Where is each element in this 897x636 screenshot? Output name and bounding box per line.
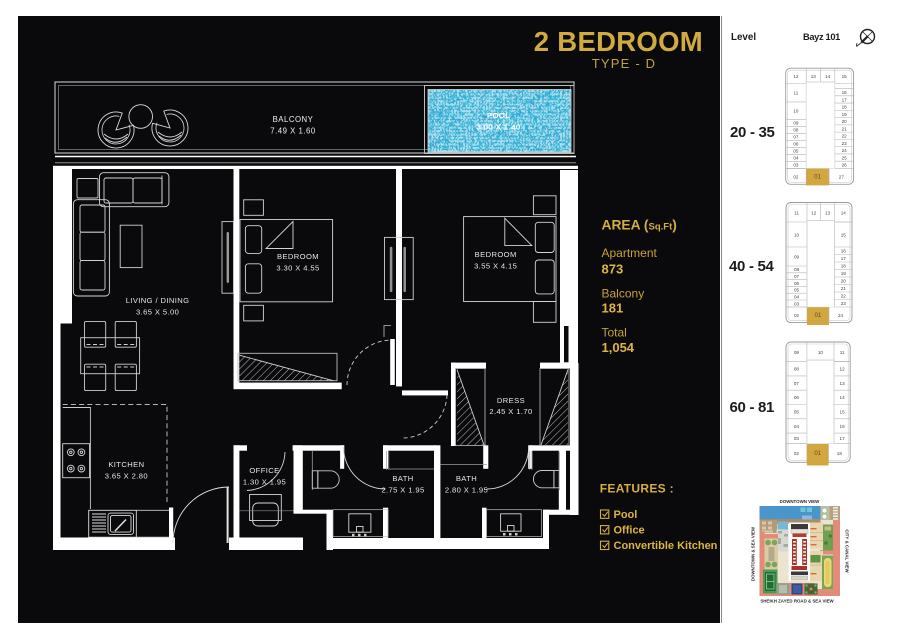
svg-text:15: 15 [841,232,847,237]
svg-text:DOWNTOWN VIEW: DOWNTOWN VIEW [780,499,821,504]
svg-text:Apartment: Apartment [602,246,658,260]
svg-text:Office: Office [614,525,645,537]
svg-text:17: 17 [841,256,847,261]
svg-text:60 - 81: 60 - 81 [730,399,775,416]
svg-text:11: 11 [794,91,799,96]
svg-text:19: 19 [841,271,847,276]
svg-text:3.30 X 4.55: 3.30 X 4.55 [276,264,319,273]
svg-text:13: 13 [840,381,846,386]
svg-text:Pool: Pool [614,509,638,521]
svg-text:DOWNTOWN & SEA VIEW: DOWNTOWN & SEA VIEW [751,526,756,581]
svg-text:2.75 X 1.95: 2.75 X 1.95 [381,486,424,495]
svg-text:12: 12 [840,367,846,372]
svg-text:LIVING / DINING: LIVING / DINING [126,296,190,305]
svg-text:07: 07 [793,135,799,140]
svg-text:24: 24 [838,313,844,318]
svg-text:12: 12 [793,74,799,79]
svg-text:01: 01 [814,451,821,457]
svg-text:181: 181 [602,301,624,316]
svg-text:27: 27 [839,174,845,179]
svg-text:14: 14 [841,210,847,215]
svg-text:11: 11 [794,210,799,215]
svg-text:26: 26 [842,163,848,168]
svg-text:7.49 X 1.60: 7.49 X 1.60 [270,127,316,136]
svg-text:12: 12 [811,210,817,215]
svg-text:3.55 X 4.15: 3.55 X 4.15 [474,262,517,271]
svg-text:BEDROOM: BEDROOM [475,250,517,259]
svg-text:20: 20 [842,119,848,124]
svg-text:05: 05 [793,149,799,154]
svg-text:04: 04 [794,294,800,299]
svg-text:16: 16 [842,90,848,95]
svg-text:03: 03 [793,163,799,168]
svg-text:01: 01 [814,174,821,180]
svg-text:05: 05 [794,409,800,414]
svg-text:2.80 X 1.95: 2.80 X 1.95 [445,486,488,495]
svg-text:2.45 X 1.70: 2.45 X 1.70 [489,407,532,416]
svg-text:14: 14 [825,74,831,79]
svg-text:BEDROOM: BEDROOM [277,252,319,261]
svg-text:02: 02 [794,313,800,318]
svg-text:09: 09 [794,254,800,259]
svg-text:09: 09 [794,350,800,355]
svg-text:3.00 X 1.40: 3.00 X 1.40 [476,123,520,132]
svg-text:BATH: BATH [456,474,477,483]
svg-text:04: 04 [794,424,800,429]
svg-text:23: 23 [842,141,848,146]
svg-text:13: 13 [811,74,817,79]
svg-text:23: 23 [841,301,847,306]
svg-text:06: 06 [794,281,800,286]
svg-text:3.65 X 5.00: 3.65 X 5.00 [136,308,179,317]
svg-text:Balcony: Balcony [602,287,645,301]
svg-text:22: 22 [842,134,848,139]
svg-text:21: 21 [841,286,847,291]
svg-text:04: 04 [793,156,799,161]
svg-text:25: 25 [842,155,848,160]
svg-text:20: 20 [841,279,847,284]
svg-text:Bayz 101: Bayz 101 [803,32,840,42]
svg-text:BATH: BATH [392,474,413,483]
svg-text:22: 22 [841,294,847,299]
svg-text:01: 01 [815,313,822,319]
svg-text:Level: Level [731,32,756,43]
svg-text:11: 11 [840,350,845,355]
svg-text:07: 07 [794,274,800,279]
svg-text:19: 19 [842,112,848,117]
svg-text:09: 09 [793,121,799,126]
svg-text:15: 15 [840,409,846,414]
svg-text:17: 17 [840,436,846,441]
svg-text:18: 18 [842,105,848,110]
svg-text:21: 21 [842,126,848,131]
svg-text:20 - 35: 20 - 35 [730,124,775,141]
svg-text:02: 02 [794,451,800,456]
svg-text:08: 08 [793,128,799,133]
svg-text:13: 13 [825,210,831,215]
svg-text:2 BEDROOM: 2 BEDROOM [534,26,703,57]
svg-text:KITCHEN: KITCHEN [108,460,144,469]
svg-text:14: 14 [840,395,846,400]
svg-text:DRESS: DRESS [497,396,525,405]
svg-text:FEATURES :: FEATURES : [600,482,674,496]
svg-text:03: 03 [794,301,800,306]
svg-text:08: 08 [794,367,800,372]
svg-text:05: 05 [794,288,800,293]
svg-text:08: 08 [794,267,800,272]
svg-text:1,054: 1,054 [602,340,635,355]
svg-text:1.30 X 1.95: 1.30 X 1.95 [243,478,286,487]
svg-text:OFFICE: OFFICE [249,466,279,475]
svg-text:10: 10 [794,232,800,237]
svg-text:3.65 X 2.80: 3.65 X 2.80 [105,472,148,481]
svg-text:15: 15 [842,74,848,79]
svg-text:CITY & CANAL VIEW: CITY & CANAL VIEW [845,529,850,573]
svg-text:06: 06 [794,395,800,400]
svg-text:16: 16 [840,424,846,429]
svg-text:03: 03 [794,436,800,441]
svg-text:10: 10 [793,108,799,113]
svg-text:40 - 54: 40 - 54 [729,258,775,275]
svg-text:POOL: POOL [487,111,510,120]
svg-text:10: 10 [818,350,824,355]
svg-text:17: 17 [842,97,848,102]
svg-text:24: 24 [842,148,848,153]
svg-text:07: 07 [794,381,800,386]
svg-text:06: 06 [793,142,799,147]
svg-text:16: 16 [841,249,847,254]
svg-text:18: 18 [837,451,843,456]
svg-text:Total: Total [602,326,627,340]
svg-text:18: 18 [841,264,847,269]
svg-text:SHEIKH ZAYED ROAD & SEA VIEW: SHEIKH ZAYED ROAD & SEA VIEW [760,599,834,604]
svg-text:873: 873 [602,262,624,277]
svg-text:02: 02 [793,174,799,179]
svg-text:Convertible Kitchen: Convertible Kitchen [614,540,718,552]
svg-text:TYPE - D: TYPE - D [592,56,657,71]
svg-text:BALCONY: BALCONY [273,115,314,124]
